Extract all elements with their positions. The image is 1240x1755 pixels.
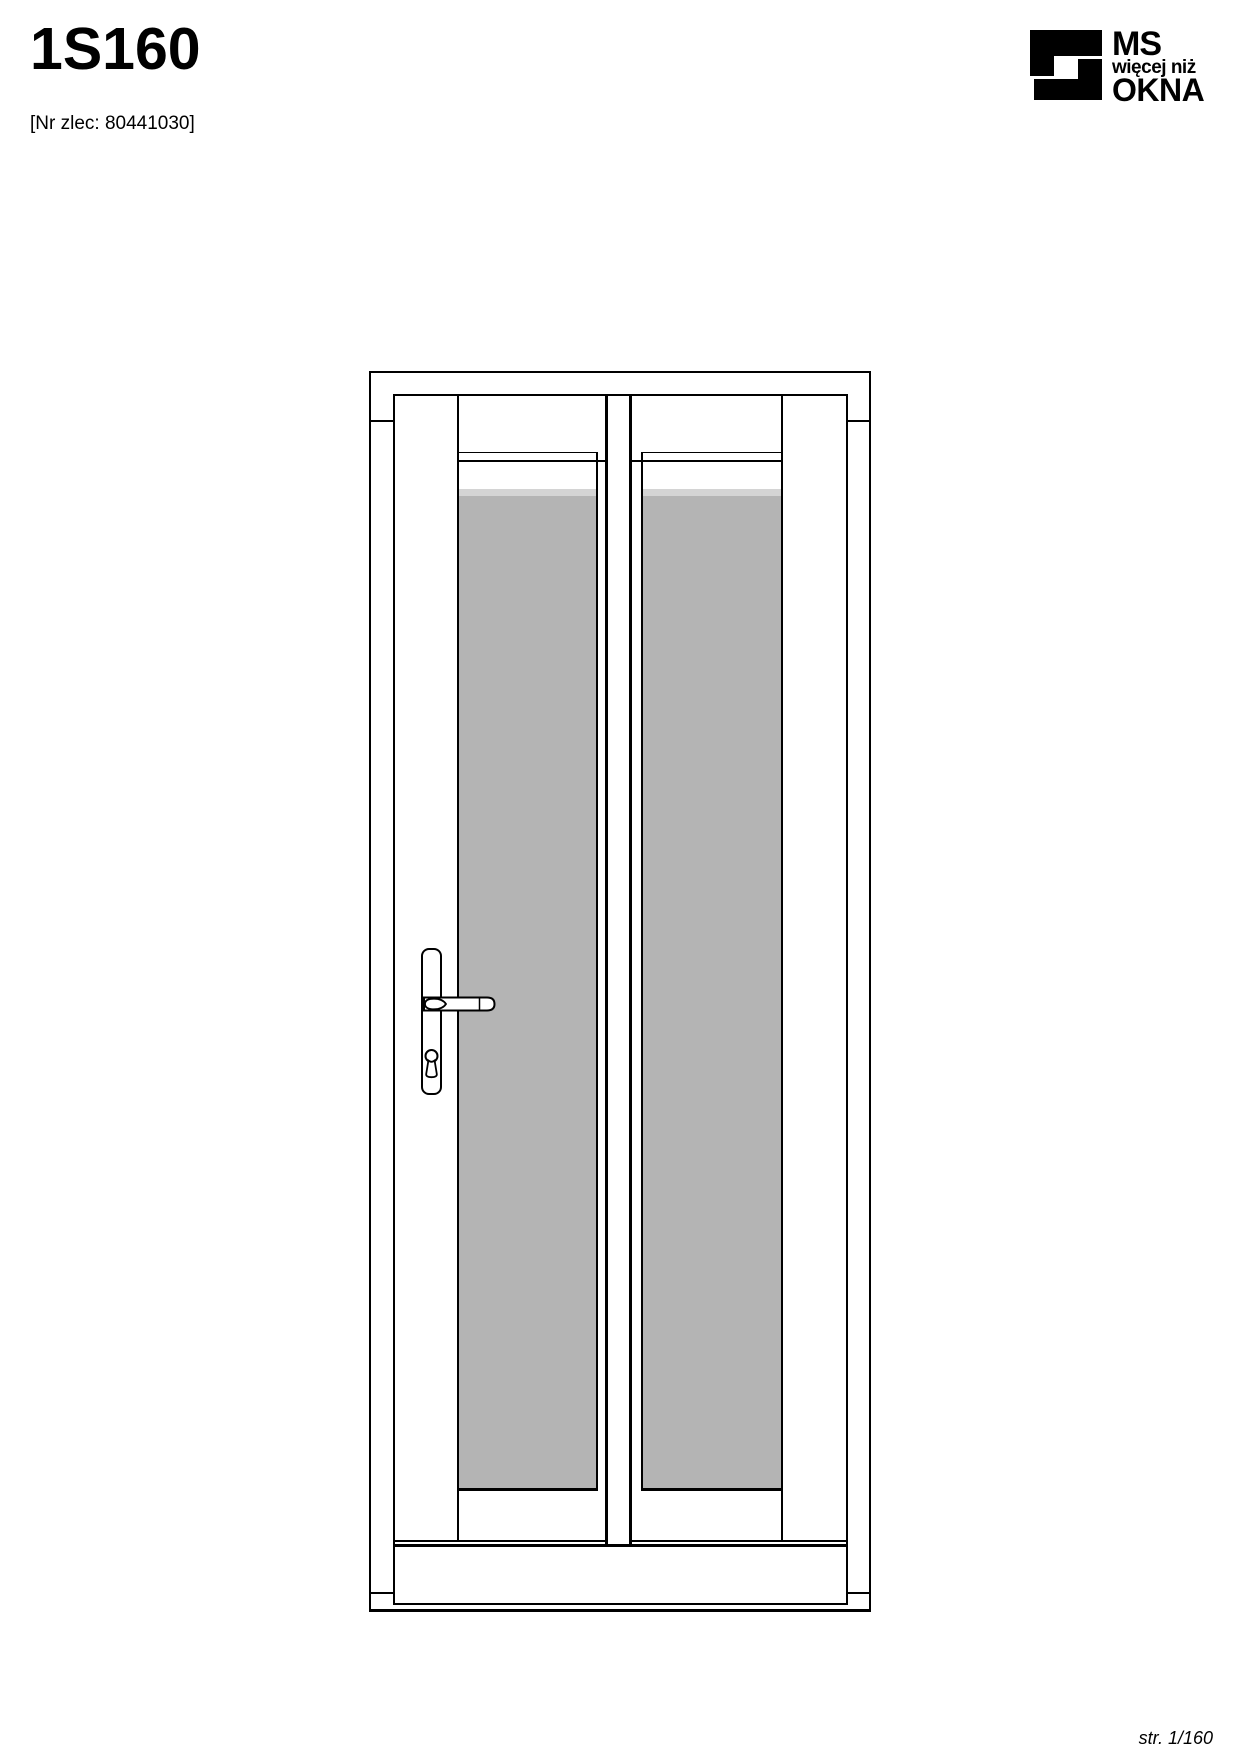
mullion-right-line (629, 394, 632, 1545)
page-number: str. 1/160 (1139, 1728, 1213, 1749)
left-pane-inner-edge-line (596, 452, 598, 1491)
frame-joint-tick-bottom-left (369, 1592, 394, 1594)
mullion-left-line (605, 394, 608, 1545)
left-top-rail-line (457, 460, 607, 462)
right-top-rail-line (630, 460, 783, 462)
outer-frame-left-line (369, 371, 371, 1611)
sash-right-line (846, 394, 848, 1605)
right-glass-pane (643, 489, 781, 1488)
keyhole-circle (426, 1050, 438, 1062)
outer-frame-top-line (369, 371, 871, 373)
frame-joint-tick-top-left (369, 420, 393, 422)
left-pane-top-thin-line (457, 452, 598, 453)
handle-neck-lens (425, 999, 446, 1010)
sash-bottom-thin-line-right (632, 1540, 848, 1542)
outer-frame-right-line (869, 371, 871, 1611)
threshold-top-line (393, 1544, 848, 1547)
right-pane-top-thin-line (641, 452, 783, 453)
left-glass-bottom-line (457, 1488, 598, 1491)
sash-left-line (393, 394, 395, 1605)
threshold-bottom-line (393, 1603, 848, 1605)
sash-top-line (393, 394, 848, 396)
keyhole-slot (426, 1061, 437, 1078)
door-elevation-drawing (0, 0, 1240, 1755)
right-glass-bottom-line (641, 1488, 783, 1491)
door-handle (415, 940, 505, 1100)
frame-joint-tick-bottom-right (846, 1592, 871, 1594)
frame-joint-tick-top-right (848, 420, 871, 422)
outer-frame-bottom-line (369, 1609, 871, 1612)
right-bead-outer-line (781, 394, 783, 1541)
sash-bottom-thin-line-left (393, 1540, 605, 1542)
